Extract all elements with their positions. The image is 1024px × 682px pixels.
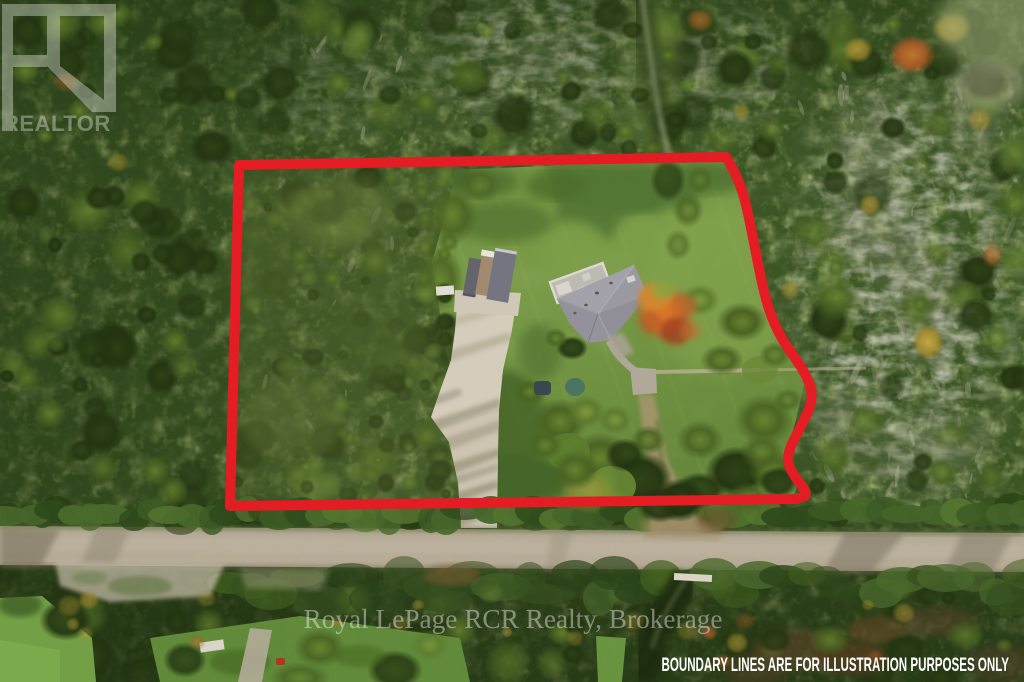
svg-text:Royal LePage RCR Realty, Broke: Royal LePage RCR Realty, Brokerage — [304, 604, 723, 634]
svg-text:BOUNDARY LINES ARE FOR ILLUSTR: BOUNDARY LINES ARE FOR ILLUSTRATION PURP… — [661, 655, 1009, 676]
svg-text:REALTOR: REALTOR — [3, 111, 111, 136]
